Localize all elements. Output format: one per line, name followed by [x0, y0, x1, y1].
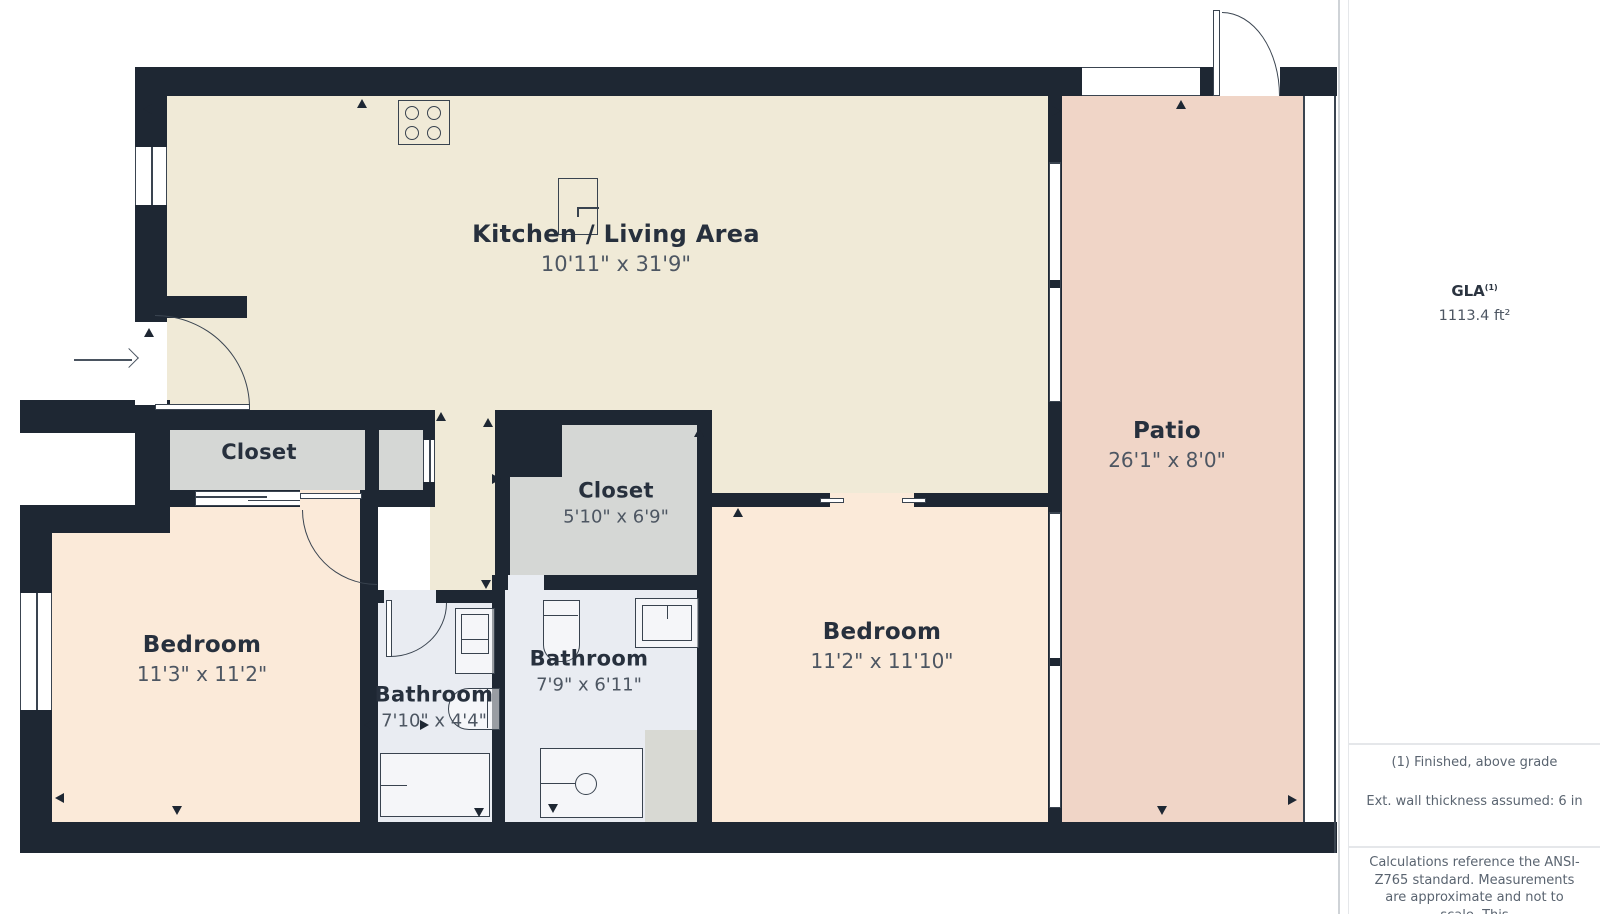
toilet-left-icon	[455, 608, 495, 674]
dimension-arrow	[481, 580, 491, 589]
window-bedroom-left	[20, 593, 52, 710]
dimension-arrow	[694, 428, 704, 437]
dimension-arrow	[474, 808, 484, 817]
room-name: Bathroom	[530, 647, 649, 671]
room-name: Bedroom	[810, 619, 953, 645]
dimension-arrow	[436, 412, 446, 421]
note-calculations: Calculations reference the ANSI-Z765 sta…	[1365, 854, 1584, 914]
wall-closet-mid-left	[495, 410, 510, 590]
glass-door-lower	[1049, 512, 1061, 808]
wall-closet-left-top	[135, 410, 435, 430]
dimension-arrow	[548, 804, 558, 813]
room-dims: 11'3" x 11'2"	[137, 662, 267, 686]
dimension-arrow	[492, 474, 501, 484]
linen-closet-floor	[378, 428, 423, 492]
bathroom-mid-label: Bathroom 7'9" x 6'11"	[530, 647, 649, 696]
sidebar-divider	[1338, 0, 1340, 914]
sidebar: GLA(1) 1113.4 ft² (1) Finished, above gr…	[1348, 0, 1600, 914]
bedroom-right-opening-jamb-r	[902, 498, 926, 503]
room-dims: 7'10" x 4'4"	[375, 711, 494, 732]
gla-heading: GLA(1)	[1349, 282, 1600, 300]
sidebar-section-divider	[1349, 743, 1600, 745]
closet-mid-label: Closet 5'10" x 6'9"	[563, 479, 669, 528]
room-dims: 7'9" x 6'11"	[530, 675, 649, 696]
dimension-arrow	[1052, 106, 1061, 116]
patio-door-arc	[1222, 12, 1280, 96]
glass-door-upper	[1049, 162, 1061, 402]
dimension-arrow	[357, 99, 367, 108]
gla-label-text: GLA	[1451, 282, 1484, 300]
dimension-arrow	[364, 720, 373, 730]
room-name: Closet	[221, 440, 297, 464]
dimension-arrow	[144, 328, 154, 337]
wall-linen-right-a	[423, 428, 435, 440]
entry-arrow-icon	[74, 355, 136, 365]
dimension-arrow	[172, 806, 182, 815]
utility-floor	[645, 730, 697, 822]
room-dims: 5'10" x 6'9"	[563, 507, 669, 528]
patio-door-leaf	[1213, 10, 1220, 96]
bedroom-right-label: Bedroom 11'2" x 11'10"	[810, 619, 953, 673]
bathroom-left-label: Bathroom 7'10" x 4'4"	[375, 683, 494, 732]
dimension-arrow	[55, 793, 64, 803]
vanity-mid-icon	[635, 598, 699, 648]
patio-label: Patio 26'1" x 8'0"	[1108, 418, 1226, 472]
stove-icon	[398, 100, 450, 145]
dimension-arrow	[1288, 795, 1297, 805]
dimension-arrow	[733, 508, 743, 517]
gla-superscript: (1)	[1485, 283, 1498, 292]
room-name: Patio	[1108, 418, 1226, 444]
wall-closet-left-right	[365, 410, 379, 492]
bathroom-mid-door-opening	[508, 575, 544, 590]
bedroom-right-opening-jamb-l	[820, 498, 844, 503]
linen-closet-door	[423, 440, 435, 482]
room-name: Bathroom	[375, 683, 494, 707]
gla-value: 1113.4 ft²	[1349, 308, 1600, 324]
wall-closet-mid-right	[697, 410, 712, 822]
dimension-arrow	[1157, 806, 1167, 815]
kitchen-living-label: Kitchen / Living Area 10'11" x 31'9"	[472, 220, 760, 276]
room-name: Closet	[563, 479, 669, 503]
wall-bottom	[20, 822, 1337, 853]
patio-railing-outer	[1334, 96, 1336, 853]
closet-left-label: Closet	[221, 440, 297, 464]
room-dims: 11'2" x 11'10"	[810, 649, 953, 673]
room-name: Kitchen / Living Area	[472, 220, 760, 248]
note-wall-thickness: Ext. wall thickness assumed: 6 in	[1365, 793, 1584, 811]
bedroom-left-label: Bedroom 11'3" x 11'2"	[137, 632, 267, 686]
wall-entry-stub	[167, 296, 247, 318]
dimension-arrow	[1176, 100, 1186, 109]
bedroom-left-door-leaf	[300, 493, 362, 499]
note-finished: (1) Finished, above grade	[1365, 754, 1584, 772]
room-dims: 10'11" x 31'9"	[472, 252, 760, 276]
room-dims: 26'1" x 8'0"	[1108, 448, 1226, 472]
wall-jut-lower	[20, 505, 170, 533]
dimension-arrow	[143, 104, 152, 114]
window-living-left	[135, 147, 167, 205]
window-patio-top	[1082, 67, 1200, 96]
room-name: Bedroom	[137, 632, 267, 658]
sidebar-section-divider	[1349, 846, 1600, 848]
patio-railing-inner	[1303, 96, 1305, 822]
dimension-arrow	[483, 418, 493, 427]
floorplan-page: Kitchen / Living Area 10'11" x 31'9" Clo…	[0, 0, 1600, 914]
